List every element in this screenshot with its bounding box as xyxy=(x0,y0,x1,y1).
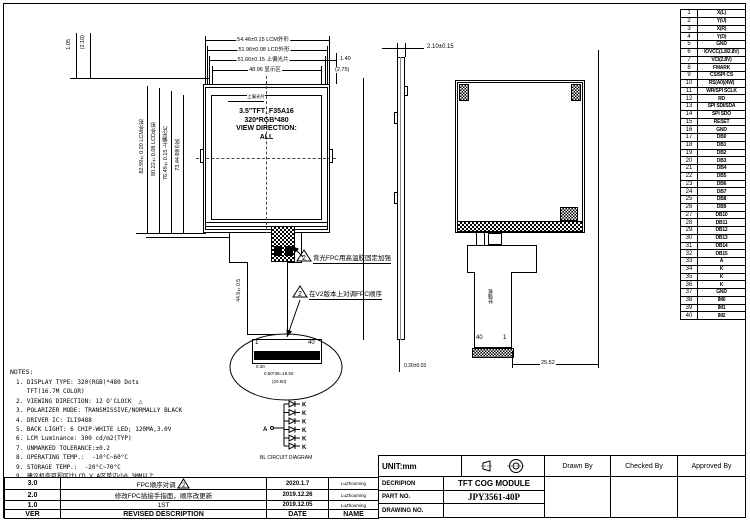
dim-value: 82.99±0.20 xyxy=(139,143,145,173)
part-no-value-cell: JPY3561-40P xyxy=(443,490,545,504)
note-line: TFT(16.7M COLOR) xyxy=(16,387,182,396)
pin-row: 17DB0 xyxy=(681,134,746,142)
dim-left-1: 82.99±0.20 LCM外形 xyxy=(139,118,146,175)
revision-desc: 1ST xyxy=(61,501,267,510)
pin-row: 14SPI SDO xyxy=(681,110,746,118)
witness-line xyxy=(321,66,322,84)
pin-number: 21 xyxy=(681,165,698,173)
projection-symbol-icon xyxy=(507,458,525,474)
callout-number: 2 xyxy=(298,291,302,298)
dim-line xyxy=(171,91,172,233)
led-branch xyxy=(284,410,300,416)
rear-pin-left: 40 xyxy=(476,336,483,342)
pin-number: 17 xyxy=(681,134,698,142)
pin-name: RESET xyxy=(698,118,746,126)
pin-name: RS(A0)(4W) xyxy=(698,79,746,87)
rear-tape-corner-right xyxy=(571,84,581,101)
led-branch xyxy=(284,418,300,424)
pin-number: 28 xyxy=(681,219,698,227)
pin-number: 25 xyxy=(681,196,698,204)
witness-line xyxy=(136,233,206,234)
detail-pad-dim: 0.30 xyxy=(256,364,265,370)
revision-header-ver: VER xyxy=(5,510,61,519)
pin-name: FMARK xyxy=(698,64,746,72)
pin-name: DB15 xyxy=(698,250,746,258)
pin-name: Y(U) xyxy=(698,17,746,25)
checked-by-signature-cell xyxy=(610,476,678,518)
notes-title: NOTES: xyxy=(10,368,33,376)
rear-stiffener-label: 补强板 xyxy=(488,288,495,305)
rear-tape-bottom-strip xyxy=(457,221,583,232)
revision-row: 3.0 FPC顺序对调 2 2020.1.7 LuZhouming xyxy=(5,478,379,490)
pin-number: 29 xyxy=(681,227,698,235)
pin-row: 21DB4 xyxy=(681,165,746,173)
drawing-sheet: 上偏光片 3.5"TFT_F35A16 320*RGB*480 VIEW DIR… xyxy=(0,0,750,521)
revision-header-row: VER REVISED DESCRIPTION DATE NAME xyxy=(5,510,379,519)
pin-number: 5 xyxy=(681,41,698,49)
pin-row: 3X(R) xyxy=(681,25,746,33)
pin-number: 14 xyxy=(681,110,698,118)
dim-value: 54.46±0.15 xyxy=(237,37,265,43)
side-view-tab xyxy=(394,192,398,204)
led-branch xyxy=(284,401,300,407)
dim-value: 51.66±0.15 xyxy=(237,57,265,63)
display-line-1: 3.5"TFT_F35A16 xyxy=(211,108,322,117)
revision-header-name: NAME xyxy=(329,510,379,519)
revision-desc: 修改FPC插接手指面，顺序改更新 xyxy=(61,490,267,501)
pin-number: 1 xyxy=(681,10,698,18)
pin-name: DB4 xyxy=(698,165,746,173)
dim-top-3: 51.66±0.15 上偏光片 xyxy=(236,57,289,63)
pin-row: 19DB2 xyxy=(681,149,746,157)
pin-table-body: 1X(L)2Y(U)3X(R)4Y(D)5GND6IOVCC(1.8/2.8V)… xyxy=(681,10,746,320)
backlight-fpc-pad xyxy=(285,246,293,256)
pin-name: K xyxy=(698,281,746,289)
revision-desc: FPC顺序对调 2 xyxy=(61,478,267,490)
witness-line xyxy=(90,33,91,78)
pin-name: CS/SPI CS xyxy=(698,72,746,80)
pin-row: 1X(L) xyxy=(681,10,746,18)
dim-left-3: 76.49±0.15 上偏光片 xyxy=(163,125,170,181)
front-view-left-notch xyxy=(200,149,204,163)
rear-tape-corner-left xyxy=(459,84,469,101)
polarizer-note: 上偏光片 xyxy=(247,94,265,100)
witness-line xyxy=(598,50,599,368)
note-line: 3. POLARIZER MODE: TRANSMISSIVE/NORMALLY… xyxy=(16,406,182,415)
pin-name: K xyxy=(698,265,746,273)
pin-name: SPI SDI/SDA xyxy=(698,103,746,111)
pin-row: 26DB9 xyxy=(681,203,746,211)
pin-row: 27DB10 xyxy=(681,211,746,219)
pin-name: DB5 xyxy=(698,172,746,180)
pin-number: 34 xyxy=(681,265,698,273)
drawn-by-signature-cell xyxy=(544,476,611,518)
note-line: 6. LCM Luminance: 300 cd/m2(TYP) xyxy=(16,434,182,443)
pin-name: GND xyxy=(698,126,746,134)
revision-header-date: DATE xyxy=(267,510,329,519)
callout-triangle-2: 2 xyxy=(292,285,308,298)
part-no-label-cell: PART NO. xyxy=(378,490,444,504)
pin-name: VCI(2.8V) xyxy=(698,56,746,64)
pin-row: 9CS/SPI CS xyxy=(681,72,746,80)
revision-name: LuZhouming xyxy=(329,478,379,490)
dim-top-left-2: (2.10) xyxy=(80,34,87,50)
rear-neck-tab xyxy=(488,233,502,245)
witness-line xyxy=(212,66,213,84)
witness-line xyxy=(146,237,232,238)
pin-row: 31DB14 xyxy=(681,242,746,250)
pin-name: DB8 xyxy=(698,196,746,204)
pin-name: DB7 xyxy=(698,188,746,196)
note-line: 5. BACK LIGHT: 6 CHIP-WHITE LED; 120MA,3… xyxy=(16,425,182,434)
revision-row: 1.0 1ST 2019.12.05 LuZhouming xyxy=(5,501,379,510)
dim-value: 76.49±0.15 xyxy=(163,150,169,180)
note-line: 9. STORAGE TEMP.: -20°C~70°C xyxy=(16,463,182,472)
bl-cathode-label: K xyxy=(302,403,307,409)
note-line: 8. OPERATING TEMP.: -10°C~60°C xyxy=(16,453,182,462)
projection-symbol-cell xyxy=(461,455,545,477)
pin-name: DB13 xyxy=(698,234,746,242)
bl-cathode-label: K xyxy=(302,411,307,417)
dim-value: 48.96 xyxy=(249,67,263,73)
witness-line xyxy=(405,43,406,57)
pin-row: 12RD xyxy=(681,95,746,103)
pin-row: 28DB11 xyxy=(681,219,746,227)
bl-circuit-caption: BL CIRCUIT DIAGRAM xyxy=(260,456,312,462)
pin-row: 7VCI(2.8V) xyxy=(681,56,746,64)
pin-number: 6 xyxy=(681,48,698,56)
pin-row: 10RS(A0)(4W) xyxy=(681,79,746,87)
fpc-length-dim: 44.9±0.5 xyxy=(236,278,243,303)
approved-by-signature-cell xyxy=(677,476,746,518)
pin-number: 4 xyxy=(681,33,698,41)
revision-name: LuZhouming xyxy=(329,501,379,510)
dim-value: 51.96±0.08 xyxy=(238,47,266,53)
pin-name: SPI SDO xyxy=(698,110,746,118)
revision-header-desc: REVISED DESCRIPTION xyxy=(61,510,267,519)
pin-number: 32 xyxy=(681,250,698,258)
drawing-no-label-cell: DRAWING NO. xyxy=(378,503,444,518)
bl-cathode-label: K xyxy=(302,437,307,443)
backlight-fpc-tape xyxy=(271,226,295,262)
detail-pitch-dim: 0.50*39=19.50 xyxy=(264,371,293,377)
callout-text-1: 背光FPC用高温胶固定加强 xyxy=(313,252,391,264)
rear-connector-contacts xyxy=(472,348,514,358)
leader-line xyxy=(399,340,400,372)
pin-row: 16GND xyxy=(681,126,746,134)
dim-left-2: 80.22±0.08 LCD外形 xyxy=(151,121,158,177)
side-view-tab xyxy=(404,86,408,96)
dim-label: 上偏光片 xyxy=(267,57,289,63)
pin-number: 20 xyxy=(681,157,698,165)
led-branch xyxy=(284,435,300,441)
description-label-cell: DECRIPION xyxy=(378,476,444,491)
dim-line xyxy=(382,48,424,49)
unit-cell: UNIT:mm xyxy=(378,455,462,477)
rear-fpc-shoulder xyxy=(467,245,537,273)
dim-label: LCD外形 xyxy=(151,122,157,144)
pin-name: A xyxy=(698,258,746,266)
display-text-block: 3.5"TFT_F35A16 320*RGB*480 VIEW DIRECTIO… xyxy=(211,108,322,142)
dim-top-1: 54.46±0.15 LCM外形 xyxy=(236,37,290,43)
pin-row: 37GND xyxy=(681,289,746,297)
revision-name: LuZhouming xyxy=(329,490,379,501)
pin-name: K xyxy=(698,273,746,281)
display-line-4: ALL xyxy=(211,134,322,143)
dim-top-left-1: 1.05 xyxy=(66,38,73,51)
pin-number: 16 xyxy=(681,126,698,134)
pin-row: 40IM2 xyxy=(681,312,746,320)
drawing-no-label: DRAWING NO. xyxy=(379,508,423,514)
bl-anode-label: A xyxy=(263,427,268,433)
revision-ver: 1.0 xyxy=(5,501,61,510)
note-line: 4. DRIVER IC: ILI9488 xyxy=(16,416,182,425)
pin-number: 13 xyxy=(681,103,698,111)
bl-cathode-label: K xyxy=(302,445,307,451)
pin-number: 7 xyxy=(681,56,698,64)
note-line: 2. VIEWING DIRECTION: 12 O'CLOCK △ xyxy=(16,397,182,406)
bl-cathode-label: K xyxy=(302,428,307,434)
approved-by-header: Approved By xyxy=(677,455,746,477)
pin-row: 29DB12 xyxy=(681,227,746,235)
dim-line xyxy=(159,88,160,233)
pin-row: 2Y(U) xyxy=(681,17,746,25)
callout-triangle-1: 2 xyxy=(296,249,312,262)
pin-name: GND xyxy=(698,289,746,297)
pin-row: 15RESET xyxy=(681,118,746,126)
projection-symbol-icon xyxy=(481,459,501,473)
pin-row: 32DB15 xyxy=(681,250,746,258)
pin-row: 36K xyxy=(681,281,746,289)
rear-neck-line xyxy=(484,233,485,245)
revision-ver: 3.0 xyxy=(5,478,61,490)
witness-line xyxy=(205,36,206,84)
display-line-2: 320*RGB*480 xyxy=(211,117,322,126)
pin-name: IM0 xyxy=(698,296,746,304)
side-view-body xyxy=(397,57,405,340)
revision-ver: 2.0 xyxy=(5,490,61,501)
pin-row: 39IM1 xyxy=(681,304,746,312)
pin-number: 35 xyxy=(681,273,698,281)
pin-name: X(R) xyxy=(698,25,746,33)
dim-line xyxy=(147,86,148,233)
pin-number: 38 xyxy=(681,296,698,304)
pin-name: DB1 xyxy=(698,141,746,149)
pin-row: 38IM0 xyxy=(681,296,746,304)
pin-number: 15 xyxy=(681,118,698,126)
revision-date: 2019.12.26 xyxy=(267,490,329,501)
rear-fpc-width-dim: 25.52 xyxy=(540,360,556,366)
backlight-fpc-pad xyxy=(274,246,282,256)
pin-row: 35K xyxy=(681,273,746,281)
pin-name: DB14 xyxy=(698,242,746,250)
pin-row: 18DB1 xyxy=(681,141,746,149)
dim-line xyxy=(183,95,184,233)
pin-row: 4Y(D) xyxy=(681,33,746,41)
witness-line xyxy=(76,33,77,78)
detail-contact-bar xyxy=(254,351,320,360)
dim-label: LCD外形 xyxy=(268,47,290,53)
led-branch xyxy=(284,443,300,449)
revision-date: 2020.1.7 xyxy=(267,478,329,490)
pin-row: 33A xyxy=(681,258,746,266)
pin-number: 33 xyxy=(681,258,698,266)
pin-number: 22 xyxy=(681,172,698,180)
pin-row: 5GND xyxy=(681,41,746,49)
pin-number: 18 xyxy=(681,141,698,149)
revision-row: 2.0 修改FPC插接手指面，顺序改更新 2019.12.26 LuZhoumi… xyxy=(5,490,379,501)
pin-number: 30 xyxy=(681,234,698,242)
side-fpc-dim: 0.30±0.03 xyxy=(404,364,426,370)
pin-name: DB0 xyxy=(698,134,746,142)
dim-top-right-1: 1.40 xyxy=(339,56,352,62)
part-no-label: PART NO. xyxy=(379,494,410,500)
pin-name: DB10 xyxy=(698,211,746,219)
pin-row: 11WR/SPI SCLK xyxy=(681,87,746,95)
drawn-by-header: Drawn By xyxy=(544,455,611,477)
description-label: DECRIPION xyxy=(379,481,415,487)
pin-name: DB3 xyxy=(698,157,746,165)
witness-line xyxy=(327,46,328,84)
pin-row: 25DB8 xyxy=(681,196,746,204)
bl-cathode-label: K xyxy=(302,420,307,426)
pin-number: 3 xyxy=(681,25,698,33)
unit-label: UNIT:mm xyxy=(379,462,417,471)
pin-name: Y(D) xyxy=(698,33,746,41)
pin-row: 20DB3 xyxy=(681,157,746,165)
detail-pin-last: 40 xyxy=(308,341,315,347)
pin-number: 2 xyxy=(681,17,698,25)
side-thickness-dim: 2.10±0.15 xyxy=(426,44,455,50)
dim-label: 显示区 xyxy=(264,67,281,73)
pin-number: 39 xyxy=(681,304,698,312)
dim-value: 80.22±0.08 xyxy=(151,146,157,176)
side-view-layer-line xyxy=(400,57,401,340)
fpc-tail-narrow xyxy=(247,262,288,335)
pin-name: DB6 xyxy=(698,180,746,188)
note-line: 7. UNMARKED TOLERANCE:±0.2 xyxy=(16,444,182,453)
rear-pin-right: 1 xyxy=(503,336,506,342)
detail-total-dim: (20.50) xyxy=(272,379,286,385)
pin-number: 24 xyxy=(681,188,698,196)
pin-name: GND xyxy=(698,41,746,49)
pin-number: 10 xyxy=(681,79,698,87)
note-line: 1. DISPLAY TYPE: 320(RGB)*480 Dots xyxy=(16,378,182,387)
pin-number: 31 xyxy=(681,242,698,250)
pin-number: 37 xyxy=(681,289,698,297)
pin-name: DB11 xyxy=(698,219,746,227)
notes-list: 1. DISPLAY TYPE: 320(RGB)*480 Dots TFT(1… xyxy=(16,378,182,481)
description-value-cell: TFT COG MODULE xyxy=(443,476,545,491)
pin-name: RD xyxy=(698,95,746,103)
dim-left-4: 73.44 显示区 xyxy=(175,138,182,172)
dim-top-4: 48.96 显示区 xyxy=(248,67,282,73)
pin-name: DB9 xyxy=(698,203,746,211)
pin-name: DB2 xyxy=(698,149,746,157)
revision-marker-triangle: 2 xyxy=(177,478,190,489)
pin-number: 19 xyxy=(681,149,698,157)
pin-number: 40 xyxy=(681,312,698,320)
revision-desc-text: FPC顺序对调 xyxy=(137,482,176,489)
revision-table: 3.0 FPC顺序对调 2 2020.1.7 LuZhouming 2.0 修改… xyxy=(4,477,379,519)
pin-row: 22DB5 xyxy=(681,172,746,180)
pin-row: 34K xyxy=(681,265,746,273)
pin-name: X(L) xyxy=(698,10,746,18)
pin-row: 30DB13 xyxy=(681,234,746,242)
display-line-3: VIEW DIRECTION: xyxy=(211,125,322,134)
front-view-centerline-h xyxy=(196,158,336,159)
pin-number: 36 xyxy=(681,281,698,289)
pin-name: IM2 xyxy=(698,312,746,320)
pin-name: DB12 xyxy=(698,227,746,235)
callout-text-2: 在V2版本上对调FPC顺序 xyxy=(309,288,382,300)
rear-neck-line xyxy=(476,233,477,245)
revision-date: 2019.12.05 xyxy=(267,501,329,510)
pin-row: 24DB7 xyxy=(681,188,746,196)
dim-value: 73.44 xyxy=(175,157,181,171)
dim-label: 上偏光片 xyxy=(163,126,169,148)
witness-line xyxy=(397,43,398,57)
pin-number: 8 xyxy=(681,64,698,72)
pin-table: 1X(L)2Y(U)3X(R)4Y(D)5GND6IOVCC(1.8/2.8V)… xyxy=(680,9,746,320)
drawing-no-value-cell xyxy=(443,503,545,518)
rear-tape-block xyxy=(560,207,578,221)
dim-label: 显示区 xyxy=(175,139,181,156)
bl-circuit-diagram: A K K K K K K xyxy=(262,398,326,454)
dim-top-2: 51.96±0.08 LCD外形 xyxy=(237,47,290,53)
pin-row: 23DB6 xyxy=(681,180,746,188)
dim-label: LCM外形 xyxy=(266,37,289,43)
section-line xyxy=(363,78,364,340)
pin-name: IOVCC(1.8/2.8V) xyxy=(698,48,746,56)
pin-number: 27 xyxy=(681,211,698,219)
pin-name: WR/SPI SCLK xyxy=(698,87,746,95)
callout-number: 2 xyxy=(302,255,306,262)
pin-number: 26 xyxy=(681,203,698,211)
checked-by-header: Checked By xyxy=(610,455,678,477)
pin-row: 6IOVCC(1.8/2.8V) xyxy=(681,48,746,56)
pin-number: 12 xyxy=(681,95,698,103)
pin-row: 8FMARK xyxy=(681,64,746,72)
polarizer-note-leader xyxy=(228,101,264,102)
dim-top-right-2: (2.75) xyxy=(334,67,350,73)
extension-line xyxy=(70,78,210,79)
front-view-right-notch xyxy=(329,149,333,163)
detail-pin-first: 1 xyxy=(255,341,258,347)
side-view-tab xyxy=(394,112,398,124)
pin-number: 23 xyxy=(681,180,698,188)
pin-number: 9 xyxy=(681,72,698,80)
pin-name: IM1 xyxy=(698,304,746,312)
pin-row: 13SPI SDI/SDA xyxy=(681,103,746,111)
dim-label: LCM外形 xyxy=(139,119,145,142)
pin-number: 11 xyxy=(681,87,698,95)
witness-line xyxy=(512,352,513,368)
led-branch xyxy=(284,427,300,433)
